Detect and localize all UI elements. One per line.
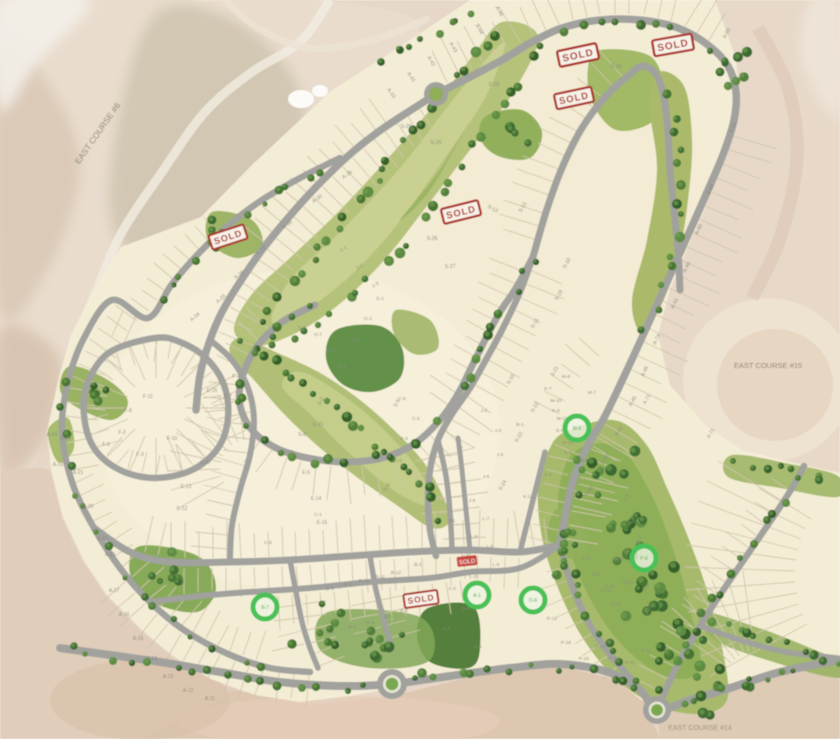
- svg-text:J-4: J-4: [497, 452, 504, 458]
- svg-text:A-3: A-3: [448, 586, 456, 592]
- svg-text:E-13: E-13: [181, 484, 192, 490]
- svg-text:A-21: A-21: [73, 470, 84, 476]
- svg-text:K-6: K-6: [552, 408, 560, 414]
- svg-text:A-15: A-15: [133, 636, 144, 642]
- svg-text:A-12: A-12: [183, 688, 194, 694]
- svg-text:O-5: O-5: [338, 364, 346, 370]
- svg-text:A-33: A-33: [53, 462, 64, 468]
- svg-text:A-19: A-19: [97, 536, 108, 542]
- svg-text:S-26: S-26: [427, 236, 438, 242]
- svg-text:J-3: J-3: [495, 428, 502, 434]
- svg-text:EAST COURSE #14: EAST COURSE #14: [668, 725, 732, 732]
- svg-text:L-8: L-8: [471, 534, 478, 540]
- svg-text:C-1: C-1: [314, 512, 322, 518]
- svg-text:G-1: G-1: [376, 296, 384, 302]
- svg-text:P-14: P-14: [595, 644, 605, 650]
- svg-text:G-2: G-2: [364, 316, 372, 322]
- svg-text:M-5: M-5: [580, 458, 589, 464]
- svg-text:B-8: B-8: [344, 582, 352, 588]
- svg-text:S-25: S-25: [489, 82, 500, 88]
- svg-text:A-22: A-22: [61, 436, 72, 442]
- svg-text:B-11: B-11: [375, 574, 385, 580]
- svg-text:S-8: S-8: [298, 432, 306, 438]
- svg-text:C-5: C-5: [412, 416, 420, 422]
- svg-text:E-16: E-16: [207, 388, 218, 394]
- svg-text:E-10: E-10: [283, 450, 294, 456]
- svg-text:S-7: S-7: [298, 326, 306, 332]
- svg-text:O-6: O-6: [326, 348, 334, 354]
- svg-text:A-24: A-24: [47, 432, 58, 438]
- svg-text:A-14: A-14: [147, 656, 158, 662]
- svg-text:K-1: K-1: [544, 472, 552, 478]
- svg-text:P-16: P-16: [561, 640, 571, 646]
- svg-text:B-12: B-12: [391, 570, 401, 576]
- svg-text:A-4: A-4: [442, 626, 450, 632]
- svg-text:L-9: L-9: [487, 544, 494, 550]
- svg-text:B-2: B-2: [400, 608, 408, 614]
- svg-text:K-3: K-3: [564, 450, 572, 456]
- svg-text:B-9: B-9: [326, 586, 334, 592]
- svg-text:A-17: A-17: [109, 588, 120, 594]
- svg-text:O-13: O-13: [613, 556, 624, 562]
- svg-text:J-6: J-6: [483, 474, 490, 480]
- svg-text:P-13: P-13: [609, 656, 619, 662]
- svg-text:O-12: O-12: [623, 580, 634, 586]
- svg-text:C-4: C-4: [400, 436, 408, 442]
- svg-text:F-11: F-11: [143, 394, 153, 400]
- svg-text:M-7: M-7: [588, 390, 597, 396]
- svg-text:F-10: F-10: [167, 436, 178, 442]
- svg-text:F-4: F-4: [232, 374, 240, 380]
- svg-text:O-11: O-11: [611, 602, 622, 608]
- svg-text:A-1: A-1: [473, 593, 481, 599]
- svg-text:O-6: O-6: [529, 598, 538, 604]
- svg-text:F-6: F-6: [102, 442, 110, 448]
- svg-text:G-3: G-3: [352, 338, 360, 344]
- svg-text:K-7: K-7: [544, 386, 552, 392]
- svg-text:A-5: A-5: [474, 644, 482, 650]
- svg-text:J-1: J-1: [449, 518, 456, 524]
- svg-text:B-4: B-4: [366, 620, 374, 626]
- svg-text:O-10: O-10: [601, 588, 612, 594]
- svg-text:E-17: E-17: [201, 460, 212, 466]
- svg-text:J-8: J-8: [469, 498, 476, 504]
- svg-text:P-12: P-12: [547, 616, 557, 622]
- svg-text:A-13: A-13: [163, 674, 174, 680]
- svg-text:F-2: F-2: [118, 430, 126, 436]
- svg-text:E-5: E-5: [302, 470, 310, 476]
- svg-text:B-7: B-7: [261, 605, 269, 611]
- svg-text:P-15: P-15: [579, 656, 589, 662]
- svg-text:B-1: B-1: [516, 422, 524, 428]
- svg-text:C-8: C-8: [264, 540, 272, 546]
- svg-text:E-15: E-15: [317, 520, 328, 526]
- svg-text:P-6: P-6: [640, 556, 648, 562]
- svg-text:F-7: F-7: [224, 394, 232, 400]
- svg-text:F-3: F-3: [136, 452, 144, 458]
- svg-text:C-3: C-3: [394, 458, 402, 464]
- svg-text:L-11: L-11: [469, 574, 479, 580]
- svg-text:E-15: E-15: [313, 422, 324, 428]
- svg-text:P-12: P-12: [625, 660, 635, 666]
- svg-text:E-14: E-14: [311, 496, 322, 502]
- svg-text:A-11: A-11: [205, 696, 215, 702]
- svg-text:B-5: B-5: [348, 624, 356, 630]
- svg-text:C-6: C-6: [398, 396, 406, 402]
- svg-text:M-10: M-10: [551, 398, 562, 404]
- svg-text:S-15: S-15: [611, 64, 622, 70]
- svg-text:S-20: S-20: [431, 140, 442, 146]
- svg-text:K-11: K-11: [523, 494, 533, 500]
- svg-text:M-8: M-8: [562, 374, 571, 380]
- svg-text:O-9: O-9: [592, 572, 600, 578]
- svg-text:B-6: B-6: [326, 630, 334, 636]
- svg-text:J-2: J-2: [481, 408, 488, 414]
- svg-text:L-6: L-6: [493, 562, 500, 568]
- svg-text:O-7: O-7: [314, 332, 322, 338]
- svg-text:A-20: A-20: [83, 504, 94, 510]
- svg-text:M-6: M-6: [573, 426, 582, 432]
- svg-text:S-27: S-27: [445, 264, 456, 270]
- svg-text:A-16: A-16: [119, 612, 130, 618]
- svg-text:B-1: B-1: [414, 562, 422, 568]
- svg-text:B-10: B-10: [359, 578, 369, 584]
- svg-text:E-12: E-12: [177, 506, 188, 512]
- svg-text:F-8: F-8: [124, 408, 132, 414]
- svg-text:EAST COURSE #15: EAST COURSE #15: [734, 361, 802, 370]
- svg-text:S-29: S-29: [401, 124, 412, 130]
- svg-text:L-7: L-7: [483, 516, 490, 522]
- svg-text:A-15: A-15: [105, 552, 116, 558]
- svg-text:B-3: B-3: [384, 614, 392, 620]
- svg-text:P-11: P-11: [641, 648, 651, 654]
- svg-text:O-8: O-8: [582, 556, 590, 562]
